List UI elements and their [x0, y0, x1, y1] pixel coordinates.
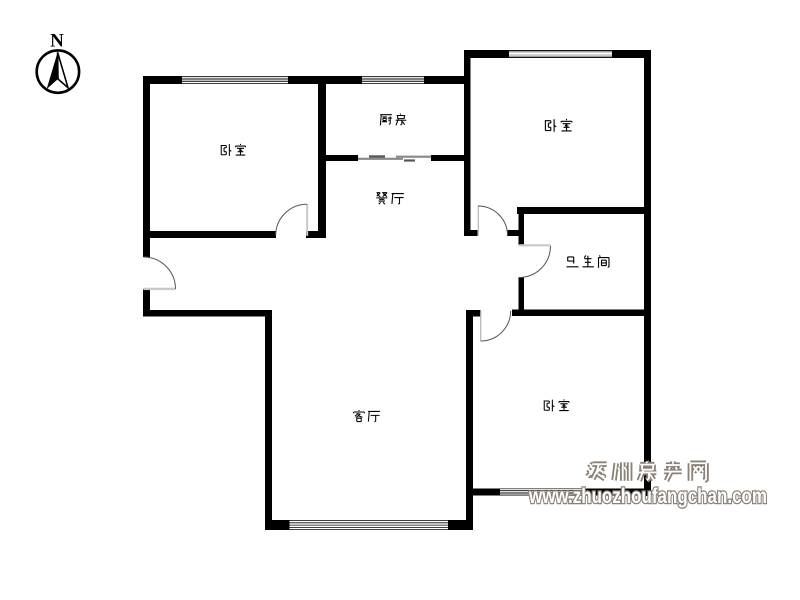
svg-text:N: N — [50, 30, 64, 51]
svg-text:www.zhuozhoufangchan.com: www.zhuozhoufangchan.com — [528, 485, 767, 508]
